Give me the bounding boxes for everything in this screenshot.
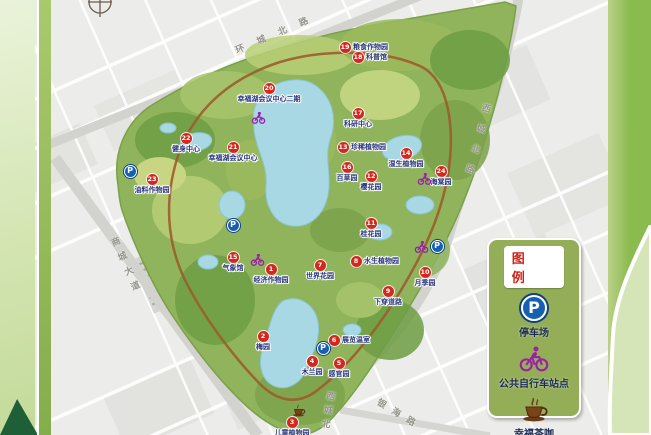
map-marker-label: 百草园 [337, 175, 358, 182]
road-name-label: 银海路 [375, 395, 425, 432]
map-marker-label: 粮食作物园 [353, 44, 388, 51]
map-marker-label: 湿生植物园 [389, 161, 424, 168]
map-marker-label: 月季园 [415, 280, 436, 287]
map-marker-label: 幸福湖会议中心 [209, 155, 258, 162]
parking-icon: P [431, 240, 444, 253]
map-marker-number: 9 [383, 286, 394, 297]
map-marker-number: 21 [228, 142, 239, 153]
map-marker-label: 桂花园 [361, 231, 382, 238]
map-marker-number: 16 [342, 162, 353, 173]
legend-item-cafe: 幸福茶咖 [514, 397, 554, 435]
map-marker-number: 18 [353, 52, 364, 63]
legend-label-parking: 停车场 [519, 324, 549, 339]
map-marker-number: 20 [264, 83, 275, 94]
map-marker-label: 感官园 [329, 371, 350, 378]
map-marker-label: 气象馆 [223, 265, 244, 272]
road-name-label: 西城北 [317, 390, 337, 434]
map-marker-label: 油料作物园 [135, 187, 170, 194]
parking-icon: P [317, 342, 330, 355]
map-marker-label: 下穿道路 [374, 299, 402, 306]
map-marker-label: 樱花园 [361, 184, 382, 191]
map-marker-number: 13 [338, 142, 349, 153]
map-marker-label: 幸福湖会议中心二期 [238, 96, 301, 103]
map-marker-number: 8 [351, 256, 362, 267]
map-marker-label: 健身中心 [172, 146, 200, 153]
coffee-cup-icon [519, 397, 549, 422]
map-marker-number: 12 [366, 171, 377, 182]
map-marker-number: 17 [353, 108, 364, 119]
road-name-label: 西城北路 [459, 102, 493, 187]
map-marker-label: 珍稀植物园 [351, 144, 386, 151]
map-marker-label: 梅园 [256, 344, 270, 351]
parking-icon: P [227, 219, 240, 232]
legend-item-bike: 公共自行车站点 [499, 346, 569, 390]
map-marker-number: 7 [315, 260, 326, 271]
map-marker-number: 24 [436, 166, 447, 177]
road-name-label: 环城北路 [233, 8, 323, 56]
map-marker-number: 4 [307, 356, 318, 367]
map-marker-label: 经济作物园 [254, 277, 289, 284]
legend-title-text: 图 例 [512, 252, 532, 286]
coffee-cup-icon [291, 402, 306, 421]
map-marker-label: 世界花园 [306, 273, 334, 280]
legend-title: 图 例 [504, 246, 565, 288]
map-marker-number: 14 [401, 148, 412, 159]
bicycle-icon [250, 251, 265, 270]
legend-label-cafe: 幸福茶咖 [514, 425, 554, 435]
map-marker-label: 科普馆 [366, 54, 387, 61]
park-map-image: 1经济作物园2梅园3儿童植物园4木兰园5感官园6展览温室7世界花园8水生植物园9… [0, 0, 651, 435]
map-marker-label: 儿童植物园 [275, 430, 310, 435]
legend-item-parking: P 停车场 [519, 295, 549, 339]
parking-icon: P [124, 165, 137, 178]
map-marker-label: 水生植物园 [364, 258, 399, 265]
bicycle-icon [417, 170, 432, 189]
map-marker-number: 19 [340, 42, 351, 53]
parking-letter: P [528, 300, 540, 316]
road-name-label: 商城大道 [107, 235, 145, 299]
map-marker-label: 展览温室 [342, 337, 370, 344]
legend-panel: 图 例 P 停车场 公共自行车站点 [487, 238, 581, 418]
map-marker-label: 木兰园 [302, 369, 323, 376]
legend-label-bike: 公共自行车站点 [499, 375, 569, 390]
map-marker-label: 海棠园 [431, 179, 452, 186]
map-marker-number: 22 [181, 133, 192, 144]
bicycle-icon [251, 109, 266, 128]
map-marker-number: 1 [266, 264, 277, 275]
map-marker-number: 2 [258, 331, 269, 342]
map-marker-number: 23 [147, 174, 158, 185]
bicycle-icon [414, 238, 429, 257]
map-marker-label: 科研中心 [344, 121, 372, 128]
map-marker-number: 11 [366, 218, 377, 229]
map-marker-number: 6 [329, 335, 340, 346]
map-marker-number: 15 [228, 252, 239, 263]
bicycle-icon [517, 346, 551, 372]
parking-icon: P [521, 295, 547, 321]
map-marker-number: 10 [420, 267, 431, 278]
map-marker-number: 5 [334, 358, 345, 369]
